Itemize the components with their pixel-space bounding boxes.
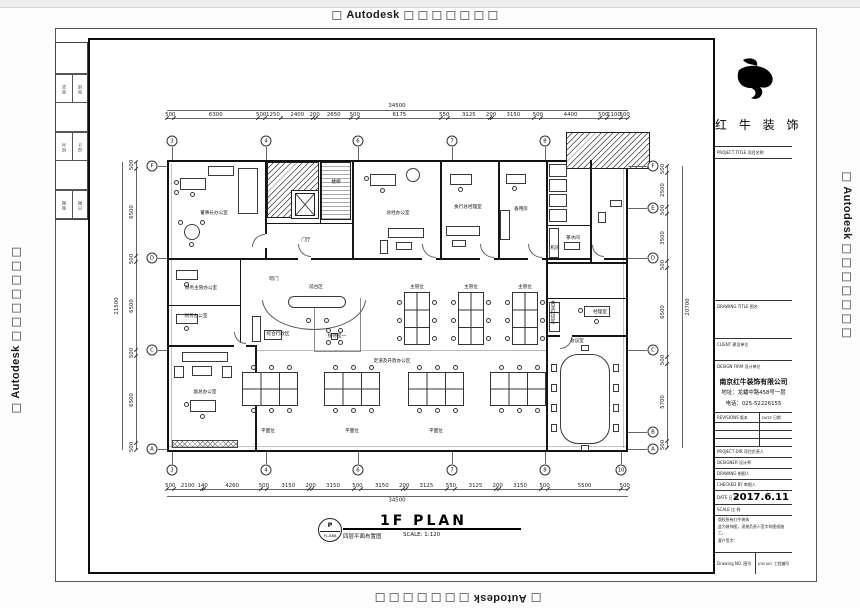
- grid-bubble: 10: [616, 465, 627, 476]
- watermark-text: Autodesk: [473, 592, 526, 604]
- autodesk-watermark: Autodesk: [332, 9, 497, 21]
- chair: [451, 300, 456, 305]
- watermark-box-icon: [419, 11, 428, 20]
- tb-project-dir-row: PROJECT DIR 项目负责人: [715, 446, 792, 457]
- wall: [546, 160, 548, 262]
- watermark-box-icon: [843, 301, 852, 310]
- room-label: 总经办公室: [387, 210, 410, 216]
- toilet-stall: [549, 164, 567, 177]
- grid-leader: [172, 452, 173, 464]
- chair: [369, 365, 374, 370]
- chair: [178, 220, 183, 225]
- drawing-stamp: P FL-888: [318, 518, 342, 542]
- chair: [417, 408, 422, 413]
- grid-leader: [628, 449, 647, 450]
- watermark-box-icon: [375, 594, 384, 603]
- dim-value: 3500: [660, 231, 666, 245]
- cabinet: [172, 440, 238, 448]
- grid-bubble: 4: [261, 465, 272, 476]
- room-label: 董事长办公室: [200, 210, 228, 216]
- sofa: [182, 352, 228, 362]
- stamp-letter: P: [319, 521, 341, 529]
- room-label: 楼梯: [331, 179, 340, 185]
- watermark-box-icon: [532, 594, 541, 603]
- watermark-box-icon: [843, 287, 852, 296]
- room-label: 会议室: [570, 338, 584, 344]
- dim-value: 6500: [660, 306, 666, 320]
- grid-bubble: A: [147, 444, 158, 455]
- cad-sheet-viewport: 审定审核校对设计制图日期: [0, 0, 860, 608]
- room-label: 备用房: [514, 206, 528, 212]
- sofa: [238, 168, 258, 214]
- tb-client-row: CLIENT 建设单位: [715, 338, 792, 350]
- room-label: 副总办公室: [194, 389, 217, 395]
- workstation-cluster: [458, 292, 484, 345]
- tb-drawing-row: DRAWING 制图人: [715, 468, 792, 479]
- room-label: 暗门: [269, 276, 278, 282]
- chair: [333, 408, 338, 413]
- wall: [546, 298, 628, 299]
- workstation-cluster: [408, 372, 464, 406]
- wall: [546, 262, 548, 452]
- corridor-line: [257, 350, 546, 351]
- watermark-box-icon: [389, 594, 398, 603]
- chair: [397, 300, 402, 305]
- chair: [184, 326, 189, 331]
- wall: [546, 335, 628, 337]
- grid-leader: [158, 449, 167, 450]
- wall: [546, 262, 628, 264]
- watermark-box-icon: [475, 11, 484, 20]
- chair: [451, 336, 456, 341]
- chair: [380, 188, 385, 193]
- chair: [613, 424, 619, 432]
- desk: [176, 270, 198, 280]
- chair: [251, 408, 256, 413]
- grid-leader: [545, 452, 546, 464]
- chair: [287, 365, 292, 370]
- coffee-table: [192, 366, 212, 376]
- grid-leader: [172, 147, 173, 160]
- grid-bubble: 3: [167, 136, 178, 147]
- chair: [540, 300, 545, 305]
- dim-value: 2100: [181, 483, 195, 489]
- workstation-cluster: [242, 372, 298, 406]
- sheet-scale: SCALE: 1:120: [403, 532, 440, 538]
- round-table: [184, 224, 200, 240]
- desk: [190, 400, 216, 412]
- grid-bubble: 6: [353, 136, 364, 147]
- company-name: 南京红牛装饰有限公司: [715, 376, 792, 386]
- dim-total-bottom: 34500: [388, 497, 405, 503]
- grid-bubble: D: [147, 253, 158, 264]
- watermark-box-icon: [12, 317, 21, 326]
- autodesk-watermark: Autodesk: [375, 592, 540, 604]
- dim-line: [167, 118, 628, 119]
- watermark-box-icon: [12, 289, 21, 298]
- watermark-box-icon: [12, 247, 21, 256]
- workstation-cluster: [404, 292, 430, 345]
- autodesk-watermark: Autodesk: [841, 172, 853, 337]
- armchair: [174, 366, 184, 378]
- chair: [451, 318, 456, 323]
- tb-project-title-row: PROJECT TITLE 项目名称: [715, 146, 792, 158]
- wall: [167, 305, 240, 306]
- title-underline: [343, 528, 521, 530]
- chair: [200, 220, 205, 225]
- grid-bubble: F: [648, 161, 659, 172]
- chair: [551, 384, 557, 392]
- grid-leader: [545, 147, 546, 160]
- room-label: 共享打印区: [549, 301, 555, 324]
- toilet-stall: [549, 194, 567, 207]
- dim-value: 3150: [326, 483, 340, 489]
- grid-leader: [266, 147, 267, 160]
- chair: [306, 318, 311, 323]
- chair: [505, 300, 510, 305]
- room-label: 平面位: [345, 428, 359, 434]
- company-phone: 电话：025-52226155: [715, 399, 792, 407]
- chair: [458, 187, 463, 192]
- desk: [450, 174, 472, 185]
- room-label: 走道及开放办公区: [374, 358, 411, 364]
- watermark-text: Autodesk: [346, 9, 399, 21]
- chair: [369, 408, 374, 413]
- watermark-box-icon: [445, 594, 454, 603]
- coffee-table: [452, 240, 466, 247]
- tb-design-firm-row: DESIGN FIRM 设计单位: [715, 360, 792, 372]
- watermark-box-icon: [843, 172, 852, 181]
- watermark-box-icon: [843, 315, 852, 324]
- grid-bubble: F: [147, 161, 158, 172]
- watermark-box-icon: [431, 594, 440, 603]
- tb-scale-row: SCALE 比 例: [715, 504, 792, 515]
- watermark-box-icon: [12, 404, 21, 413]
- chair: [351, 408, 356, 413]
- chair: [517, 408, 522, 413]
- chair: [397, 318, 402, 323]
- room-label: 平面位: [261, 428, 275, 434]
- dim-total-line-right: [682, 166, 683, 448]
- dim-value: 3125: [462, 112, 476, 118]
- coffee-table: [396, 242, 412, 250]
- dim-value: 200: [399, 483, 409, 489]
- note-line-1: 版权所有红牛装饰: [718, 517, 788, 523]
- tb-checked-row: CHECKED BY 审图人: [715, 479, 792, 490]
- watermark-box-icon: [843, 273, 852, 282]
- watermark-box-icon: [332, 11, 341, 20]
- chair: [540, 336, 545, 341]
- room-label: 财务主管办公室: [185, 285, 217, 291]
- dim-value: 3125: [469, 483, 483, 489]
- room-label: 执行总经理室: [454, 204, 482, 210]
- chair: [269, 365, 274, 370]
- watermark-box-icon: [433, 11, 442, 20]
- grid-bubble: B: [648, 427, 659, 438]
- room-label: 主管位: [410, 284, 424, 290]
- chair: [581, 345, 589, 351]
- company-address: 地址：龙蟠中路458号一层: [715, 388, 792, 396]
- grid-bubble: 3: [167, 465, 178, 476]
- sofa: [500, 210, 510, 240]
- grid-leader: [158, 350, 167, 351]
- room-label: 机房: [550, 245, 559, 251]
- toilet-stall: [549, 179, 567, 192]
- chair: [499, 408, 504, 413]
- watermark-box-icon: [459, 594, 468, 603]
- desk: [180, 178, 206, 190]
- tb-designer-row: DESIGNER 设计师: [715, 457, 792, 468]
- red-bull-logo: [733, 56, 777, 108]
- window-line-right: [623, 164, 624, 448]
- chair: [517, 365, 522, 370]
- toilet-stall: [549, 209, 567, 222]
- grid-bubble: 7: [447, 465, 458, 476]
- room-label: 主管位: [464, 284, 478, 290]
- watermark-box-icon: [405, 11, 414, 20]
- dim-line: [667, 166, 668, 448]
- chair: [486, 336, 491, 341]
- dim-total-top: 34500: [388, 103, 405, 109]
- stool: [338, 340, 343, 345]
- room-label: 前台区: [309, 284, 323, 290]
- autodesk-watermark: Autodesk: [10, 247, 22, 412]
- dim-value: 6500: [129, 205, 135, 219]
- grid-bubble: C: [648, 345, 659, 356]
- room-label: 综合行政区: [267, 331, 290, 337]
- grid-bubble: 8: [540, 465, 551, 476]
- chair: [364, 176, 369, 181]
- chair: [581, 445, 589, 451]
- watermark-box-icon: [447, 11, 456, 20]
- workstation-cluster: [512, 292, 538, 345]
- window-line-left: [171, 164, 172, 448]
- partition: [314, 351, 361, 352]
- stamp-number: FL-888: [319, 533, 341, 538]
- chair: [535, 365, 540, 370]
- grid-bubble: 8: [540, 136, 551, 147]
- dim-value: 6500: [129, 393, 135, 407]
- dim-value: 3125: [420, 483, 434, 489]
- grid-leader: [628, 350, 647, 351]
- round-table: [406, 168, 420, 182]
- chair: [453, 408, 458, 413]
- dim-value: 6175: [392, 112, 406, 118]
- grid-leader: [621, 452, 622, 464]
- chair: [190, 192, 195, 197]
- chair: [551, 364, 557, 372]
- dim-value: 3150: [375, 483, 389, 489]
- brand-name: 红 牛 装 饰: [715, 116, 792, 133]
- watermark-box-icon: [12, 331, 21, 340]
- room-label: 主管位: [518, 284, 532, 290]
- chair: [499, 365, 504, 370]
- dim-value: 3150: [281, 483, 295, 489]
- room-label: 接待室一: [328, 333, 346, 339]
- desk: [370, 174, 396, 186]
- chair: [269, 408, 274, 413]
- chair: [432, 300, 437, 305]
- dim-line: [136, 162, 137, 450]
- dim-value: 3150: [513, 483, 527, 489]
- dim-value: 2500: [660, 183, 666, 197]
- dim-value: 5700: [660, 396, 666, 410]
- room-label: 茶水间: [566, 235, 580, 241]
- dim-value: 6300: [209, 112, 223, 118]
- tb-project-area: [715, 158, 792, 300]
- elevator: [291, 190, 319, 219]
- title-block: 红 牛 装 饰 PROJECT TITLE 项目名称 DRAWING TITLE…: [715, 38, 792, 574]
- chair: [351, 365, 356, 370]
- grid-leader: [452, 147, 453, 160]
- grid-bubble: 6: [353, 465, 364, 476]
- sofa: [446, 226, 480, 236]
- dim-total-line-top: [167, 110, 628, 111]
- grid-leader: [628, 258, 647, 259]
- grid-leader: [158, 166, 167, 167]
- chair: [287, 408, 292, 413]
- sheet-title: 1F PLAN: [380, 513, 467, 529]
- watermark-box-icon: [843, 259, 852, 268]
- watermark-box-icon: [12, 275, 21, 284]
- dim-value: 5500: [578, 483, 592, 489]
- sink: [610, 200, 622, 207]
- table: [564, 242, 580, 250]
- dim-total-right: 20700: [685, 298, 691, 315]
- wall: [546, 225, 591, 226]
- watermark-box-icon: [403, 594, 412, 603]
- sofa: [388, 228, 424, 238]
- sofa: [208, 166, 234, 176]
- sheet-subtitle: 四层平面布置图: [343, 532, 382, 540]
- grid-leader: [452, 452, 453, 464]
- chair: [435, 365, 440, 370]
- wc: [598, 212, 606, 223]
- chair: [432, 336, 437, 341]
- grid-bubble: 7: [447, 136, 458, 147]
- grid-leader: [628, 208, 647, 209]
- chair: [184, 402, 189, 407]
- stool: [326, 340, 331, 345]
- room-label: 平面位: [429, 428, 443, 434]
- meeting-table: [560, 354, 610, 444]
- chair: [505, 336, 510, 341]
- dim-value: 6500: [129, 299, 135, 313]
- chair: [551, 424, 557, 432]
- dim-value: 4260: [225, 483, 239, 489]
- chair: [417, 365, 422, 370]
- grid-bubble: C: [147, 345, 158, 356]
- armchair: [380, 240, 388, 254]
- chair: [505, 318, 510, 323]
- chair: [189, 242, 194, 247]
- chair: [578, 308, 583, 313]
- cabinet: [252, 316, 261, 342]
- chair: [551, 404, 557, 412]
- corridor-wall: [167, 258, 628, 260]
- workstation-cluster: [490, 372, 546, 406]
- grid-leader: [358, 147, 359, 160]
- watermark-box-icon: [12, 303, 21, 312]
- stairs: [321, 162, 351, 220]
- chair: [200, 414, 205, 419]
- dim-value: 2400: [290, 112, 304, 118]
- room-label: 经理室: [593, 309, 607, 315]
- grid-leader: [628, 432, 647, 433]
- chair: [435, 408, 440, 413]
- watermark-box-icon: [843, 329, 852, 338]
- chair: [594, 319, 599, 324]
- dim-value: 4400: [564, 112, 578, 118]
- chair: [535, 408, 540, 413]
- room-label: 财务办公室: [185, 313, 208, 319]
- watermark-box-icon: [417, 594, 426, 603]
- wall: [440, 160, 442, 258]
- wall: [352, 160, 354, 258]
- watermark-text: Autodesk: [10, 345, 22, 398]
- workstation-cluster: [324, 372, 380, 406]
- grid-bubble: D: [648, 253, 659, 264]
- canopy-hatch: [566, 132, 650, 169]
- watermark-box-icon: [12, 261, 21, 270]
- chair: [453, 365, 458, 370]
- chair: [512, 186, 517, 191]
- chair: [613, 364, 619, 372]
- chair: [251, 365, 256, 370]
- chair: [397, 336, 402, 341]
- dim-value: 2650: [327, 112, 341, 118]
- grid-bubble: E: [648, 203, 659, 214]
- watermark-box-icon: [843, 245, 852, 254]
- chair: [174, 180, 179, 185]
- chair: [486, 300, 491, 305]
- tb-date-row: DATE 日 期 2017.6.11: [715, 490, 792, 504]
- wall: [498, 160, 500, 258]
- watermark-text: Autodesk: [841, 186, 853, 239]
- armchair: [222, 366, 232, 378]
- tb-drawing-no-row: Drawing NO. 图号 JOB NO. 工程编号: [715, 552, 792, 574]
- chair: [324, 318, 329, 323]
- chair: [613, 404, 619, 412]
- grid-bubble: 4: [261, 136, 272, 147]
- chair: [540, 318, 545, 323]
- dim-value: 3150: [507, 112, 521, 118]
- grid-leader: [158, 258, 167, 259]
- dim-line: [167, 489, 628, 490]
- grid-bubble: A: [648, 444, 659, 455]
- chair: [613, 384, 619, 392]
- tb-revisions-header: REVISIONS 版本 DATE 日期: [715, 412, 792, 422]
- watermark-box-icon: [461, 11, 470, 20]
- dim-total-line-left: [122, 162, 123, 450]
- room-label: 门厅: [301, 237, 310, 243]
- grid-leader: [358, 452, 359, 464]
- chair: [333, 365, 338, 370]
- desk: [506, 174, 526, 184]
- chair: [486, 318, 491, 323]
- reception-counter: [288, 296, 346, 308]
- grid-leader: [266, 452, 267, 464]
- note-line-2: 此为装饰图，须按负责人签字的图纸施工。: [718, 524, 788, 537]
- tb-drawing-title-row: DRAWING TITLE 图名: [715, 300, 792, 312]
- chair: [432, 318, 437, 323]
- date-value: 2017.6.11: [733, 492, 789, 503]
- client-sign-label: 客户签字：: [718, 538, 788, 544]
- watermark-box-icon: [489, 11, 498, 20]
- wall: [265, 223, 353, 224]
- counter: [549, 228, 559, 258]
- dim-value: 1250: [266, 112, 280, 118]
